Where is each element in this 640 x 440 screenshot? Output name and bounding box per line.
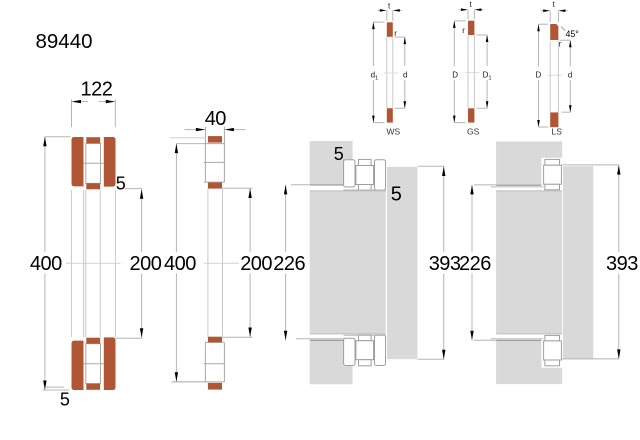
svg-text:d: d: [403, 71, 407, 80]
svg-text:122: 122: [81, 78, 113, 100]
svg-text:GS: GS: [467, 127, 480, 137]
svg-text:5: 5: [391, 183, 402, 205]
svg-text:r: r: [462, 26, 465, 35]
svg-text:D: D: [536, 71, 542, 80]
svg-text:r: r: [559, 40, 562, 49]
svg-text:226: 226: [459, 253, 491, 275]
svg-text:45°: 45°: [566, 29, 579, 39]
svg-text:200: 200: [240, 253, 272, 275]
svg-text:1: 1: [375, 75, 378, 81]
svg-text:89440: 89440: [36, 30, 93, 53]
svg-text:5: 5: [116, 173, 126, 193]
svg-text:LS: LS: [552, 127, 563, 137]
svg-text:d: d: [568, 71, 572, 80]
svg-text:1: 1: [488, 75, 491, 81]
svg-text:D: D: [452, 71, 458, 80]
svg-text:393: 393: [429, 253, 461, 275]
svg-text:226: 226: [273, 253, 305, 275]
svg-text:393: 393: [606, 253, 638, 275]
svg-text:5: 5: [334, 144, 344, 164]
svg-text:400: 400: [164, 253, 196, 275]
svg-text:400: 400: [30, 253, 62, 275]
svg-text:WS: WS: [387, 127, 401, 137]
svg-text:200: 200: [130, 253, 162, 275]
svg-text:5: 5: [60, 389, 70, 409]
svg-text:40: 40: [205, 108, 227, 130]
